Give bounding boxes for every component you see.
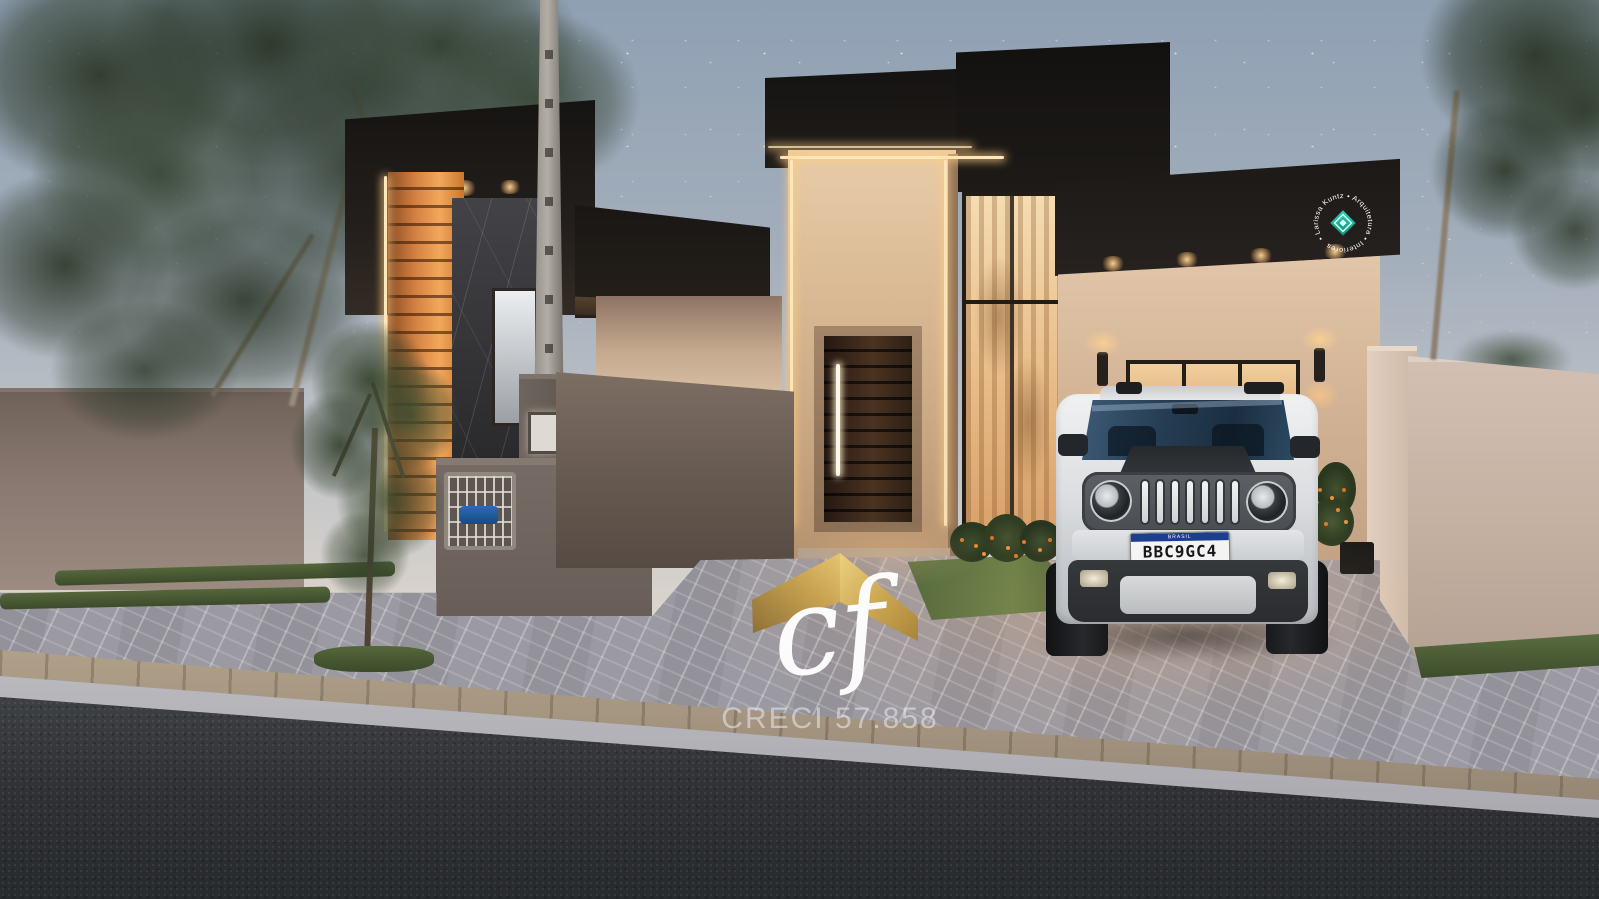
downlight-glow: [1248, 248, 1274, 263]
led-strip-horizontal: [780, 156, 1004, 159]
rendering-scene: BRASIL BBC9GC4 cf CRECI 57: [0, 0, 1599, 899]
blue-meter: [460, 506, 498, 524]
grille-slot: [1140, 479, 1150, 525]
suv: BRASIL BBC9GC4: [1038, 384, 1338, 664]
grille-slot: [1230, 479, 1240, 525]
tree-grass-patch: [314, 646, 434, 672]
lower-fascia: [1068, 560, 1308, 622]
fog-light-right: [1268, 572, 1296, 589]
grille-slot: [1200, 479, 1210, 525]
fog-light-left: [1080, 570, 1108, 587]
watermark-creci: CRECI 57.858: [700, 702, 960, 736]
grille-slot: [1185, 479, 1195, 525]
center-parapet-tall: [956, 42, 1170, 192]
downlight-glow: [498, 180, 522, 194]
led-strip-vertical: [944, 160, 947, 526]
right-perimeter-wall: [1408, 356, 1599, 656]
skid-plate: [1120, 576, 1256, 614]
sidewalk-tree: [290, 320, 460, 680]
grille-slot: [1155, 479, 1165, 525]
watermark: cf CRECI 57.858: [690, 510, 970, 760]
black-planter: [1340, 542, 1374, 574]
side-mirror-right: [1290, 436, 1320, 458]
headlight-right: [1246, 481, 1288, 523]
foliage: [50, 300, 240, 440]
roof-rail: [1244, 382, 1284, 394]
grille-panel: [1082, 472, 1296, 532]
door-handle-lit: [836, 364, 840, 476]
window-mullion: [966, 300, 1062, 304]
grille-slot: [1170, 479, 1180, 525]
seven-slot-grille: [1140, 479, 1240, 525]
architect-stamp: • Larissa Kuntz • Arquitetura • Interior…: [1310, 190, 1376, 256]
roof-rail: [1116, 382, 1142, 394]
tower-side-shadow: [948, 154, 958, 562]
teal-diamond-icon: [1330, 210, 1355, 235]
side-mirror-left: [1058, 434, 1088, 456]
foliage: [320, 510, 410, 600]
window-mullion: [1010, 196, 1014, 526]
led-strip-horizontal: [768, 146, 972, 148]
downlight-glow: [1174, 252, 1200, 267]
tree-silhouette-in-window: [974, 256, 1024, 376]
wall-sconce: [1314, 348, 1325, 382]
stamp-svg: • Larissa Kuntz • Arquitetura • Interior…: [1310, 190, 1376, 256]
downlight-glow: [1100, 256, 1126, 271]
watermark-initials: cf: [765, 556, 892, 701]
wall-sconce: [1097, 352, 1108, 386]
tree-right: [1390, 0, 1599, 390]
headlight-left: [1090, 480, 1132, 522]
grille-slot: [1215, 479, 1225, 525]
